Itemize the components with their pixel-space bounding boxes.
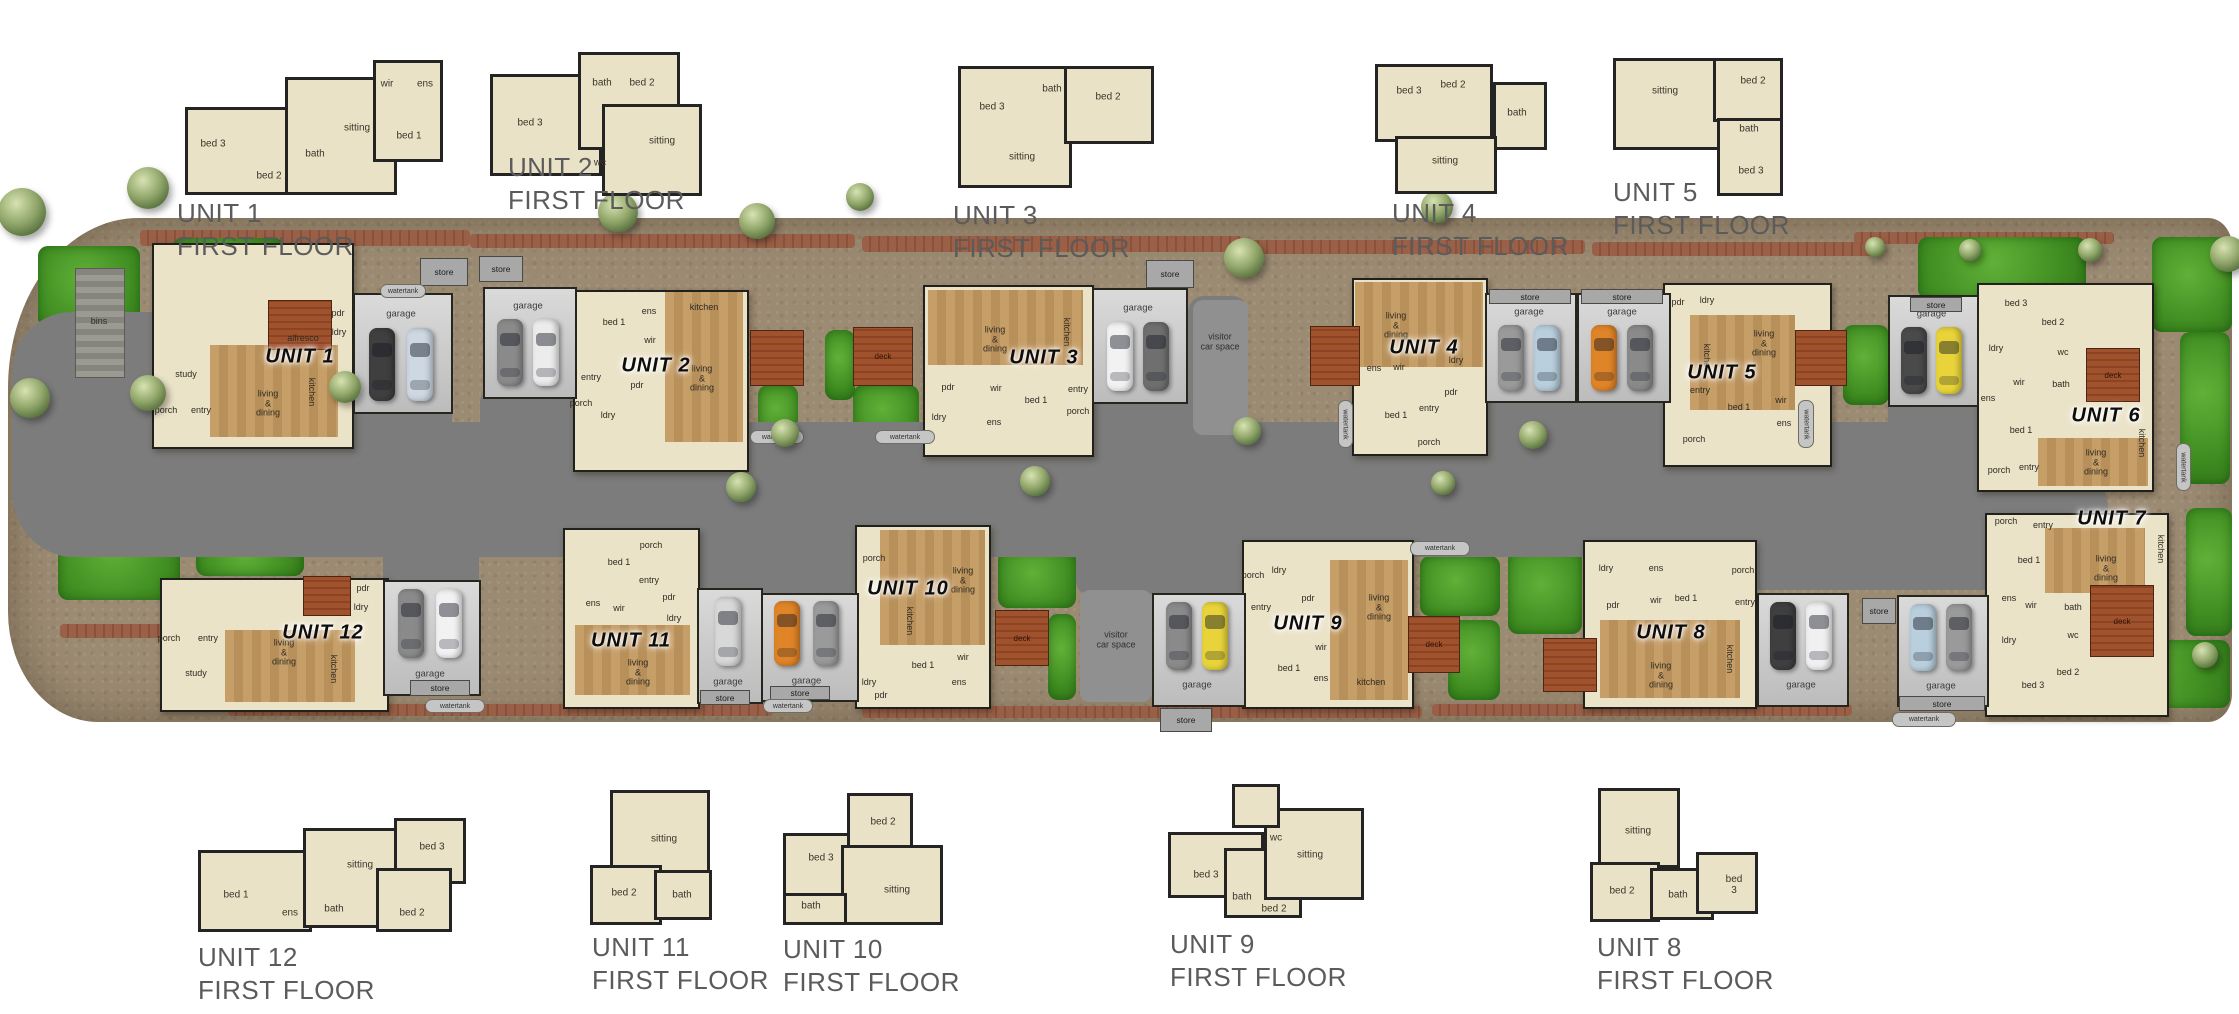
plan-outline	[198, 850, 312, 932]
tree	[1224, 238, 1264, 278]
store: store	[1146, 260, 1194, 288]
watertank-label: watertank	[2180, 452, 2187, 482]
unit-ground-label: UNIT 11	[591, 630, 671, 653]
deck-label: deck	[1426, 640, 1443, 649]
tree	[726, 472, 756, 502]
watertank-label: watertank	[773, 703, 803, 710]
timber-floor	[2038, 438, 2148, 486]
unit-ground-label: UNIT 12	[282, 622, 363, 645]
tree	[1233, 417, 1261, 445]
floor-plan-label: UNIT 1 FIRST FLOOR	[177, 197, 354, 264]
unit-ground-label: UNIT 6	[2071, 405, 2140, 428]
store: store	[770, 686, 830, 700]
lawn	[1508, 550, 1582, 634]
unit-ground-label: UNIT 9	[1273, 613, 1342, 636]
watertank: watertank	[1798, 400, 1814, 448]
watertank-label: watertank	[1803, 409, 1810, 439]
plan-outline	[841, 845, 943, 925]
tree	[771, 419, 799, 447]
floor-plan-card: bed 1ensbathsittingbed 3bed 2	[198, 818, 466, 938]
plan-outline	[376, 868, 452, 932]
plan-outline	[1064, 66, 1154, 144]
floor-plan-card: bed 3bathbed 2sitting	[958, 52, 1154, 190]
plan-outline	[1375, 64, 1493, 142]
deck-label: deck	[875, 352, 892, 361]
floor-plan-card: wcbed 3bathsittingbed 2	[1168, 784, 1366, 926]
tree	[2078, 238, 2102, 262]
watertank: watertank	[763, 699, 813, 713]
watertank: watertank	[875, 430, 935, 444]
floor-plan-label: UNIT 3 FIRST FLOOR	[953, 199, 1130, 266]
garage-label: garage	[513, 301, 543, 312]
car	[1107, 322, 1133, 391]
car	[1534, 325, 1560, 391]
unit-ground-label: UNIT 7	[2077, 508, 2146, 531]
car	[369, 328, 395, 401]
plan-outline	[654, 870, 712, 920]
car	[497, 319, 523, 386]
watertank: watertank	[1338, 400, 1353, 448]
store: store	[1160, 708, 1212, 732]
floor-plan-label: UNIT 2 FIRST FLOOR	[508, 151, 685, 218]
tree	[2192, 642, 2218, 668]
plan-outline	[958, 66, 1072, 188]
watertank-label: watertank	[890, 434, 920, 441]
tree	[1959, 239, 1981, 261]
unit-ground-label: UNIT 3	[1009, 347, 1078, 370]
store: store	[1862, 598, 1896, 624]
watertank-label: watertank	[440, 703, 470, 710]
floor-plan-label: UNIT 11 FIRST FLOOR	[592, 931, 769, 998]
car	[436, 589, 462, 658]
floor-plan-label: UNIT 4 FIRST FLOOR	[1392, 197, 1569, 264]
watertank-label: watertank	[1425, 545, 1455, 552]
watertank: watertank	[380, 284, 426, 298]
plan-outline	[1232, 784, 1280, 828]
deck: deck	[995, 610, 1049, 666]
watertank-label: watertank	[1342, 409, 1349, 439]
watertank-label: watertank	[388, 288, 418, 295]
deck: deck	[2086, 348, 2140, 402]
deck	[750, 330, 804, 386]
car	[1498, 325, 1524, 391]
tree	[1431, 471, 1455, 495]
floor-plan-label: UNIT 10 FIRST FLOOR	[783, 933, 960, 1000]
car	[1143, 322, 1169, 391]
deck-label: deck	[2114, 617, 2131, 626]
car	[1166, 602, 1192, 670]
tree	[329, 371, 361, 403]
garage-label: garage	[415, 669, 445, 680]
garage-label: garage	[1926, 680, 1956, 691]
lawn	[1843, 325, 1889, 405]
lawn	[1420, 556, 1500, 616]
car	[1770, 602, 1796, 670]
car	[533, 319, 559, 386]
car	[1910, 604, 1936, 671]
bins-area	[75, 268, 125, 378]
store: store	[410, 680, 470, 696]
garage-label: garage	[1182, 680, 1212, 691]
floor-plan-label: UNIT 8 FIRST FLOOR	[1597, 931, 1774, 998]
car	[715, 597, 741, 666]
unit-ground-label: UNIT 2	[621, 355, 690, 378]
tree	[1519, 421, 1547, 449]
watertank-label: watertank	[1909, 716, 1939, 723]
lawn	[825, 330, 855, 400]
tree	[846, 183, 874, 211]
floor-plan-card: sittingbed 2bath	[590, 790, 712, 928]
tree	[2210, 236, 2239, 272]
store: store	[1489, 289, 1571, 304]
garage-label: garage	[713, 677, 743, 688]
store: store	[1910, 297, 1962, 312]
floor-plan-label: UNIT 5 FIRST FLOOR	[1613, 176, 1790, 243]
deck: deck	[1408, 616, 1460, 673]
deck-label: deck	[2105, 371, 2122, 380]
plan-outline	[1713, 58, 1783, 122]
car	[813, 601, 839, 666]
store: store	[420, 258, 468, 286]
watertank: watertank	[1892, 712, 1956, 727]
car	[1806, 602, 1832, 670]
car	[1627, 325, 1653, 391]
garage-label: garage	[1786, 680, 1816, 691]
car	[398, 589, 424, 658]
road	[693, 546, 859, 594]
deck	[268, 300, 332, 350]
plan-outline	[1493, 82, 1547, 150]
visitor-car-space	[1193, 300, 1248, 435]
car	[1936, 327, 1962, 394]
floor-plan-label: UNIT 9 FIRST FLOOR	[1170, 928, 1347, 995]
plan-outline	[1395, 136, 1497, 194]
plan-outline	[783, 893, 847, 925]
garden-bed	[470, 234, 855, 248]
deck	[1310, 326, 1360, 386]
tree	[127, 167, 169, 209]
floor-plan-card: bed 2bed 3bathsitting	[783, 793, 943, 927]
floor-plan-card: sittingbed 2bathbed 3	[1613, 48, 1783, 196]
unit-ground-label: UNIT 10	[867, 578, 948, 601]
car	[774, 601, 800, 666]
floor-plan-card: bed 3bed 2bathsitting	[1375, 52, 1547, 194]
garden-bed	[1592, 242, 1882, 256]
deck	[303, 576, 351, 616]
deck: deck	[2090, 585, 2154, 657]
tree	[1020, 466, 1050, 496]
garage-label: garage	[1607, 307, 1637, 318]
watertank: watertank	[425, 699, 485, 713]
store: store	[1899, 696, 1985, 711]
car	[1591, 325, 1617, 391]
floor-plan-card: bed 3bed 2bathsittingbed 1wirens	[185, 45, 443, 197]
floor-plan-card: sittingbed 2bathbed 3	[1590, 788, 1758, 926]
road	[1076, 546, 1246, 594]
plan-outline	[1598, 788, 1680, 868]
tree	[1865, 237, 1885, 257]
lawn	[2186, 508, 2232, 636]
tree	[130, 375, 166, 411]
unit-ground-label: UNIT 5	[1687, 362, 1756, 385]
lawn	[998, 550, 1076, 608]
floor-plan-label: UNIT 12 FIRST FLOOR	[198, 941, 375, 1008]
garage-label: garage	[1514, 307, 1544, 318]
deck: deck	[853, 327, 913, 386]
garage-label: garage	[1123, 303, 1153, 314]
deck	[1795, 330, 1847, 386]
plan-outline	[373, 60, 443, 162]
car	[1901, 327, 1927, 394]
watertank: watertank	[2176, 443, 2191, 491]
tree	[10, 378, 50, 418]
watertank: watertank	[1410, 541, 1470, 556]
deck-label: deck	[1014, 634, 1031, 643]
tree	[739, 203, 775, 239]
garage-label: garage	[386, 309, 416, 320]
unit-ground-label: UNIT 4	[1389, 337, 1458, 360]
site-plan-image: binsvisitor car spacevisitor car spacede…	[0, 0, 2239, 1014]
deck	[1543, 638, 1597, 692]
unit-ground-label: UNIT 8	[1636, 622, 1705, 645]
plan-outline	[590, 865, 662, 925]
tree	[0, 188, 46, 236]
lawn	[1048, 614, 1076, 700]
store: store	[1581, 289, 1663, 304]
timber-floor	[2045, 528, 2145, 593]
store: store	[700, 690, 750, 705]
visitor-car-space	[1080, 590, 1152, 702]
car	[1946, 604, 1972, 671]
car	[407, 328, 433, 401]
unit-ground-label: UNIT 1	[265, 346, 334, 369]
car	[1202, 602, 1228, 670]
road	[1888, 398, 1980, 493]
store: store	[479, 256, 523, 282]
plan-outline	[1696, 852, 1758, 914]
